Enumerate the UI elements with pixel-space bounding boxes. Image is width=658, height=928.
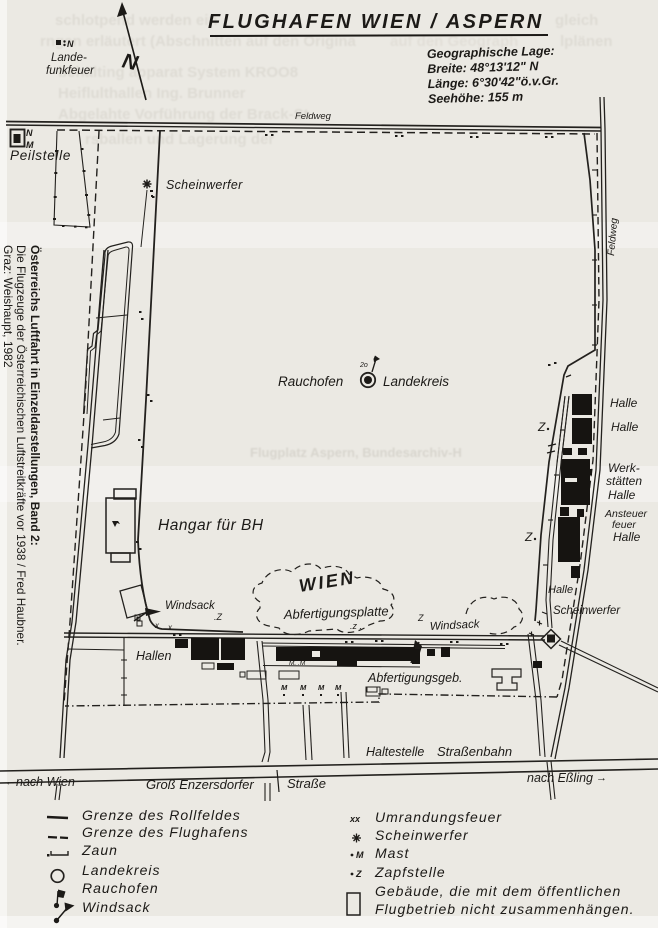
svg-text:M: M <box>281 683 288 692</box>
svg-text:.z .: .z . <box>350 621 362 631</box>
svg-text:Seehöhe: 155 m: Seehöhe: 155 m <box>428 90 524 106</box>
svg-text:Abgelahte Vorführung der Brack: Abgelahte Vorführung der Brack-St <box>58 106 309 123</box>
svg-text:Graz: Weishaupt, 1982: Graz: Weishaupt, 1982 <box>1 245 15 368</box>
svg-text:M: M <box>300 683 307 692</box>
svg-text:stätten: stätten <box>606 474 642 488</box>
svg-text:Gebäude, die mit dem öffentlic: Gebäude, die mit dem öffentlichen <box>375 883 621 899</box>
svg-text:Umrandungsfeuer: Umrandungsfeuer <box>375 809 502 825</box>
svg-text:nach Eßling: nach Eßling <box>527 771 593 785</box>
svg-text:Halle: Halle <box>610 396 638 410</box>
svg-text:Z: Z <box>355 869 362 879</box>
svg-text:.Z: .Z <box>214 612 223 622</box>
svg-text:N: N <box>67 39 74 49</box>
svg-text:Straßenbahn: Straßenbahn <box>437 744 512 759</box>
svg-text:Haltestelle: Haltestelle <box>366 745 424 759</box>
svg-text:Landekreis: Landekreis <box>82 862 161 878</box>
svg-text:N: N <box>26 128 33 138</box>
svg-text:Hangar für BH: Hangar für BH <box>158 517 264 534</box>
svg-text:Halle: Halle <box>548 584 573 596</box>
svg-text:Zaun: Zaun <box>81 842 118 858</box>
svg-text:Z: Z <box>524 530 533 544</box>
svg-text:Scheinwerfer: Scheinwerfer <box>166 178 243 192</box>
svg-text:Flugplatz Aspern, Bundesarchiv: Flugplatz Aspern, Bundesarchiv-H <box>250 445 462 460</box>
svg-text:Österreichs Luftfahrt in Einze: Österreichs Luftfahrt in Einzeldarstellu… <box>28 245 43 546</box>
svg-text:Grenze des Rollfeldes: Grenze des Rollfeldes <box>82 807 241 823</box>
svg-text:Halle: Halle <box>611 420 639 434</box>
svg-text:Peilstelle: Peilstelle <box>10 148 71 163</box>
svg-text:Zapfstelle: Zapfstelle <box>374 864 446 880</box>
svg-text:behälting apparat System KROO8: behälting apparat System KROO8 <box>58 64 298 81</box>
svg-text:Abfertigungsgeb.: Abfertigungsgeb. <box>367 671 463 685</box>
svg-text:Hallen: Hallen <box>136 649 171 663</box>
svg-text:Mast: Mast <box>375 845 409 861</box>
svg-text:Werk-: Werk- <box>608 461 640 475</box>
svg-text:Landekreis: Landekreis <box>383 374 449 389</box>
svg-text:Grenze des Flughafens: Grenze des Flughafens <box>82 824 249 840</box>
svg-text:Z: Z <box>417 613 424 623</box>
svg-text:Scheinwerfer: Scheinwerfer <box>553 605 621 617</box>
svg-text:Lande-: Lande- <box>51 52 87 64</box>
svg-text:Heiflulthallen Ing. Brunner: Heiflulthallen Ing. Brunner <box>58 85 246 102</box>
svg-text:M: M <box>318 683 325 692</box>
svg-text:Rauchofen: Rauchofen <box>82 880 159 896</box>
svg-text:2o: 2o <box>359 362 368 369</box>
svg-text:Windsack: Windsack <box>165 600 216 612</box>
svg-text:Z: Z <box>537 420 546 434</box>
svg-text:Halle: Halle <box>613 530 641 544</box>
svg-text:M: M <box>356 850 364 860</box>
svg-text:Feldweg: Feldweg <box>295 111 332 122</box>
svg-text:Breite: 48°13'12" N: Breite: 48°13'12" N <box>427 59 539 76</box>
svg-text:Rauchofen: Rauchofen <box>278 374 343 389</box>
svg-text:gleich: gleich <box>555 12 598 29</box>
svg-text:rsballen und Lagerung der: rsballen und Lagerung der <box>85 131 274 148</box>
svg-text:M: M <box>335 683 342 692</box>
svg-text:Straße: Straße <box>287 776 326 791</box>
svg-text:Die Flugzeuge der Österreichis: Die Flugzeuge der Österreichischen Lufts… <box>14 245 28 646</box>
svg-text:Groß Enzersdorfer: Groß Enzersdorfer <box>146 777 254 792</box>
svg-text:→: → <box>596 772 607 784</box>
svg-text:FLUGHAFEN WIEN / ASPERN: FLUGHAFEN WIEN / ASPERN <box>208 11 544 33</box>
svg-text:Halle: Halle <box>608 488 636 502</box>
svg-text:nach Wien: nach Wien <box>16 775 75 789</box>
svg-text:Flugbetrieb nicht zusammenhäng: Flugbetrieb nicht zusammenhängen. <box>375 901 634 917</box>
svg-text:schlotpend werden ein: schlotpend werden ein <box>55 12 218 29</box>
svg-text:Windsack: Windsack <box>82 899 151 915</box>
svg-text:lplänen: lplänen <box>560 33 613 50</box>
svg-text:Scheinwerfer: Scheinwerfer <box>375 827 469 843</box>
svg-text:M. .M: M. .M <box>289 660 306 667</box>
svg-text:funkfeuer: funkfeuer <box>46 65 95 77</box>
svg-text:xx: xx <box>349 814 361 824</box>
svg-text:←: ← <box>5 776 16 788</box>
